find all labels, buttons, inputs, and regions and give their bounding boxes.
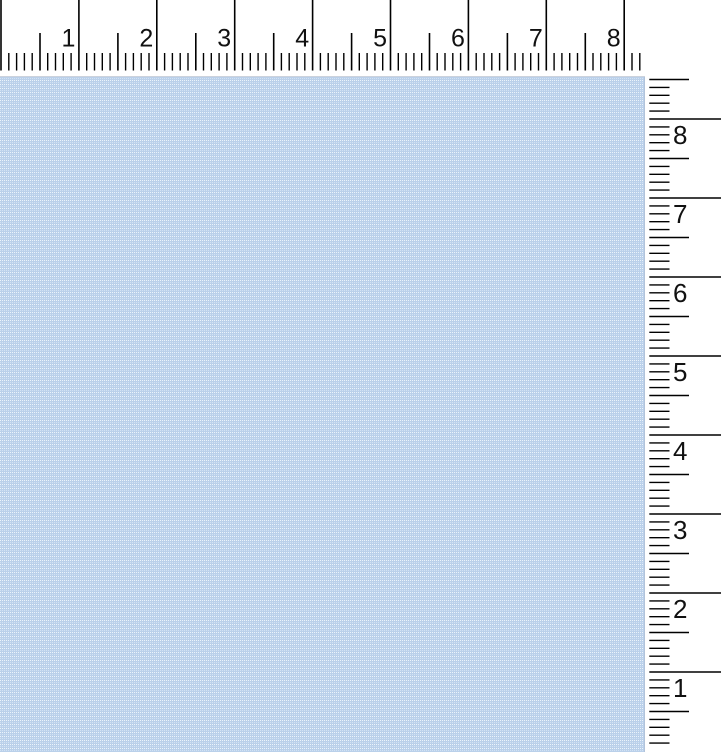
svg-text:7: 7 [529,25,543,53]
svg-text:3: 3 [217,25,231,53]
svg-text:7: 7 [673,199,687,229]
svg-text:6: 6 [673,278,687,308]
svg-text:5: 5 [673,357,687,387]
svg-text:5: 5 [373,25,387,53]
svg-text:6: 6 [451,25,465,53]
svg-text:1: 1 [61,25,75,53]
svg-text:2: 2 [139,25,153,53]
svg-text:1: 1 [673,673,687,703]
svg-text:4: 4 [295,25,309,53]
svg-text:4: 4 [673,436,687,466]
svg-text:2: 2 [673,594,687,624]
svg-text:8: 8 [673,120,687,150]
svg-text:3: 3 [673,515,687,545]
svg-text:8: 8 [607,25,621,53]
